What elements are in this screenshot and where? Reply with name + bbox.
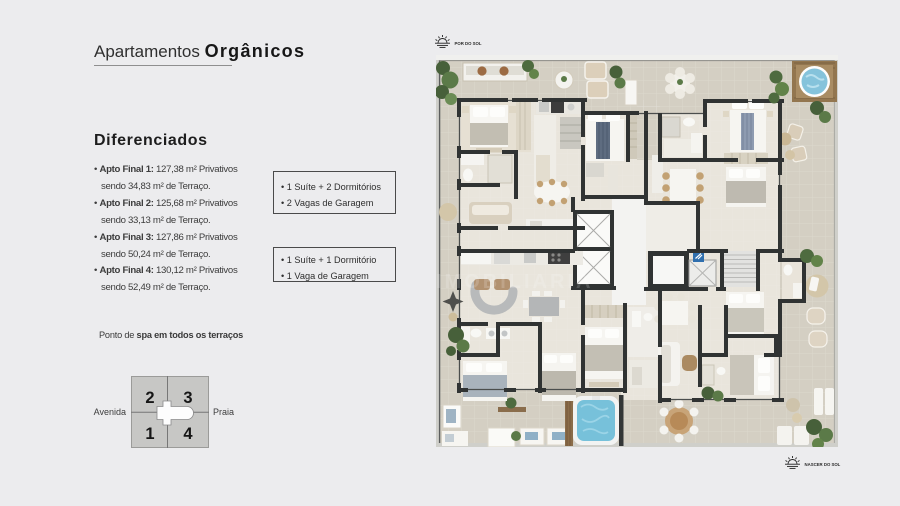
svg-text:1: 1 xyxy=(145,425,154,443)
svg-text:4: 4 xyxy=(183,425,193,443)
svg-text:3: 3 xyxy=(183,389,192,407)
svg-text:NASCER DO SOL: NASCER DO SOL xyxy=(805,462,841,467)
svg-text:IMOBILIARIA: IMOBILIARIA xyxy=(436,271,593,293)
svg-text:POR DO SOL: POR DO SOL xyxy=(455,41,482,46)
svg-text:2: 2 xyxy=(145,389,154,407)
